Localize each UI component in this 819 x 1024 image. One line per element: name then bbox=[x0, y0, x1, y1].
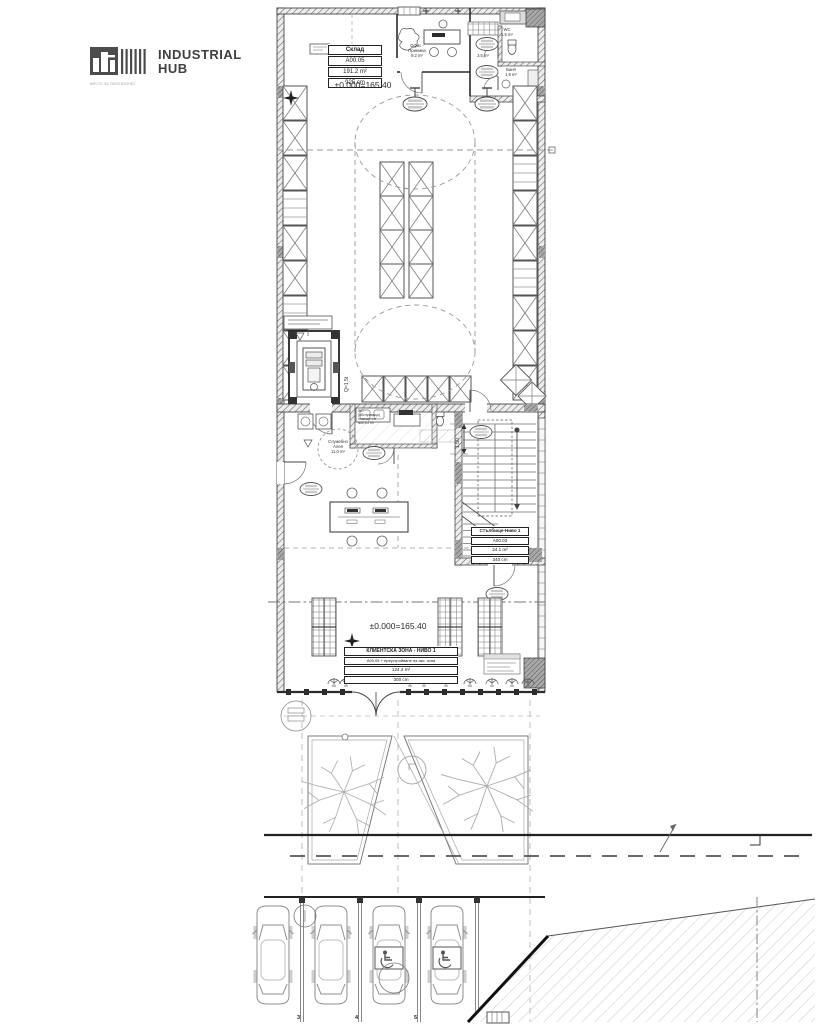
client-chair bbox=[377, 488, 387, 498]
door-size-tag bbox=[470, 426, 492, 439]
door-size-tag bbox=[476, 38, 498, 51]
parked-car bbox=[311, 906, 352, 1004]
office-chair bbox=[439, 20, 447, 28]
planter-bed bbox=[404, 736, 528, 864]
room-height: 300 cm bbox=[344, 676, 458, 685]
room-number: A00.05 bbox=[328, 56, 382, 66]
room-name: КЛИЕНТСКА ЗОНА - НИВО 1 bbox=[344, 647, 458, 656]
client-chair bbox=[347, 536, 357, 546]
washer-unit bbox=[316, 414, 331, 429]
room-area: 24.1 m² bbox=[471, 546, 529, 555]
walkway-edge bbox=[394, 736, 459, 864]
office-room-label: Офис - Приемна 9.2 m² bbox=[396, 44, 438, 58]
bath-room-label: Баня 1.9 m² bbox=[499, 68, 523, 78]
client-chair bbox=[377, 536, 387, 546]
room-area: 191.2 m² bbox=[328, 67, 382, 77]
floor-plan-page: { "logo": { "name_line1": "INDUSTRIAL", … bbox=[0, 0, 819, 1024]
office-chair bbox=[448, 48, 457, 57]
reception-monitor bbox=[375, 509, 386, 512]
floor-drain bbox=[502, 80, 510, 88]
hatched-zone bbox=[468, 898, 815, 1022]
washer-unit bbox=[298, 414, 313, 429]
parking-area: 3 4 5 bbox=[253, 897, 816, 1023]
shaft-column bbox=[526, 9, 545, 27]
service-toilet bbox=[437, 416, 444, 426]
door-size-tag bbox=[476, 66, 498, 79]
room-number: А00.05 + преустройване на акс. зона bbox=[344, 657, 458, 666]
service-band bbox=[277, 403, 545, 469]
sink-basin bbox=[505, 13, 520, 21]
electrical-box bbox=[310, 44, 330, 54]
stall-number: 3 bbox=[297, 1015, 300, 1021]
service-alley-label: Служебно Алея 11.0 m² bbox=[318, 440, 358, 454]
service-wc-label: WC (обслужващо) помещение №6 3.2 m² bbox=[358, 410, 400, 426]
room-35-label: 3.5 m² bbox=[470, 54, 496, 59]
level-mark-client: ±0.000=165.40 bbox=[352, 622, 444, 632]
lift-capacity-label: Q=1.5t bbox=[345, 377, 351, 392]
accessible-parking-sign bbox=[433, 947, 461, 969]
desk-monitor bbox=[432, 33, 445, 37]
door-size-tag bbox=[363, 447, 385, 460]
grate bbox=[487, 1012, 509, 1023]
wc-room-label: WC 1.5 m² bbox=[497, 28, 517, 38]
parked-car bbox=[253, 906, 294, 1004]
floor-plan-drawing: 3 4 5 bbox=[0, 0, 819, 1024]
tree bbox=[441, 747, 533, 832]
entrance-door-swing bbox=[352, 692, 376, 716]
room-info-table-stairs: Стълбище-Ниво 1 A00.03 24.1 m² 340 cm bbox=[471, 526, 529, 564]
stair-width-dimension: 1.50 bbox=[456, 438, 462, 448]
room-info-table-client-zone: КЛИЕНТСКА ЗОНА - НИВО 1 А00.05 + преустр… bbox=[344, 646, 458, 684]
reception-monitor bbox=[347, 509, 358, 512]
room-name: Склад bbox=[328, 45, 382, 55]
equipment-tag bbox=[403, 88, 427, 111]
level-mark-storage: ±0.000=165.40 bbox=[318, 81, 408, 91]
cargo-lift bbox=[284, 316, 339, 405]
room-number: A00.03 bbox=[471, 537, 529, 546]
accessible-parking-sign bbox=[375, 947, 403, 969]
stair-arrow-head bbox=[514, 504, 520, 510]
client-chair bbox=[347, 488, 357, 498]
room-name: Стълбище-Ниво 1 bbox=[471, 527, 529, 536]
equipment-tag bbox=[475, 88, 499, 111]
door-size-tag bbox=[300, 483, 322, 496]
kitchenette-grid bbox=[468, 22, 498, 35]
service-equipment bbox=[399, 410, 413, 415]
entrance-door-swing bbox=[376, 692, 400, 716]
stairwell bbox=[455, 390, 545, 601]
room-area: 124.2 m² bbox=[344, 666, 458, 675]
room-height: 340 cm bbox=[471, 556, 529, 565]
stall-number: 5 bbox=[414, 1015, 417, 1021]
lift-callout-box bbox=[284, 316, 332, 329]
